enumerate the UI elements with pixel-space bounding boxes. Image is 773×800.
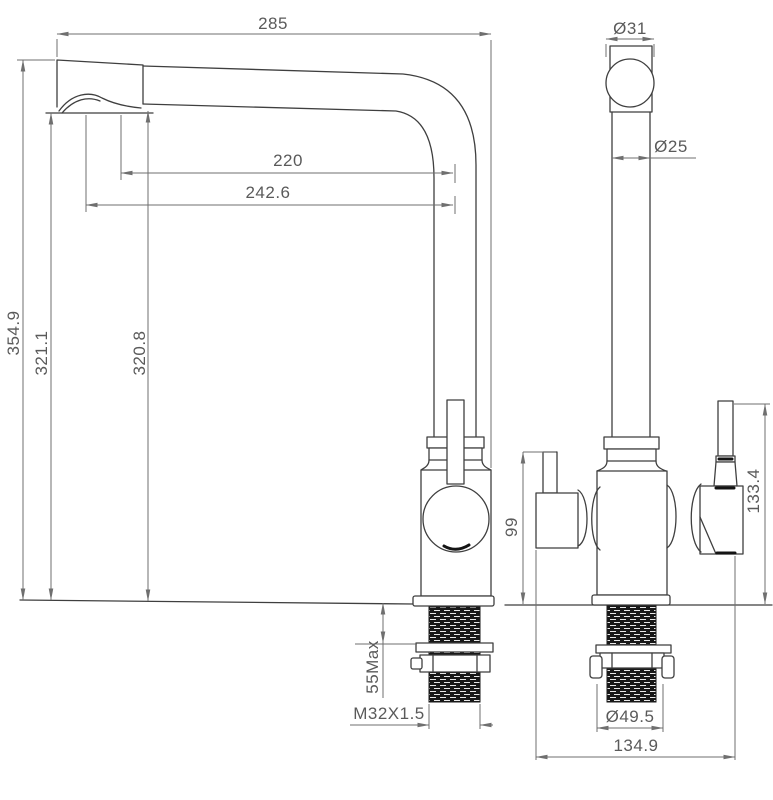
faucet-body-side <box>597 471 667 595</box>
dim-height-spout-label: 320.8 <box>130 330 149 375</box>
dim-flange-diameter-label: Ø49.5 <box>606 707 655 726</box>
base-plate-front <box>413 596 494 606</box>
dim-footprint-width-label: 134.9 <box>613 736 658 755</box>
dim-shank-thread-label: M32X1.5 <box>353 704 425 723</box>
base-plate-side <box>592 595 670 605</box>
dim-handle-height-label: 133.4 <box>744 468 763 513</box>
faucet-dimension-drawing: 285 Ø31 Ø25 220 242.6 354.9 321.1 320.8 … <box>0 0 773 800</box>
threaded-shank-side <box>590 606 674 702</box>
mounting-nut-front <box>420 655 490 672</box>
spout-end-circle <box>606 59 654 107</box>
dim-overall-width-label: 285 <box>258 14 288 33</box>
main-lever-rod <box>718 401 733 456</box>
dim-side-lever-height-label: 99 <box>502 517 521 537</box>
shank-washer-side <box>596 645 671 653</box>
body-sphere-front <box>423 486 489 552</box>
spout-head <box>46 60 153 113</box>
dim-spout-reach-label: 220 <box>273 151 303 170</box>
dim-spout-reach-outer-label: 242.6 <box>245 183 290 202</box>
left-valve-lever <box>543 452 557 493</box>
threaded-shank-front <box>411 607 493 702</box>
right-valve-block <box>700 486 743 554</box>
deck-line-front <box>20 600 413 604</box>
dim-height-aerator-label: 321.1 <box>32 330 51 375</box>
shank-washer-front <box>416 643 493 652</box>
dim-head-diameter-label: Ø31 <box>613 19 647 38</box>
dim-overall-height-label: 354.9 <box>4 310 23 355</box>
cartridge-collar-side <box>604 437 659 449</box>
dim-tube-diameter-label: Ø25 <box>654 137 688 156</box>
mounting-nut-side <box>600 653 664 668</box>
drawing-canvas: 285 Ø31 Ø25 220 242.6 354.9 321.1 320.8 … <box>0 0 773 800</box>
riser-tube-side <box>612 112 650 437</box>
front-view <box>20 60 494 702</box>
handle-stub-front <box>447 400 464 484</box>
dim-deck-max-label: 55Max <box>363 640 382 694</box>
left-valve-block <box>536 493 578 548</box>
spout-tube <box>143 66 476 437</box>
side-view <box>505 46 772 702</box>
